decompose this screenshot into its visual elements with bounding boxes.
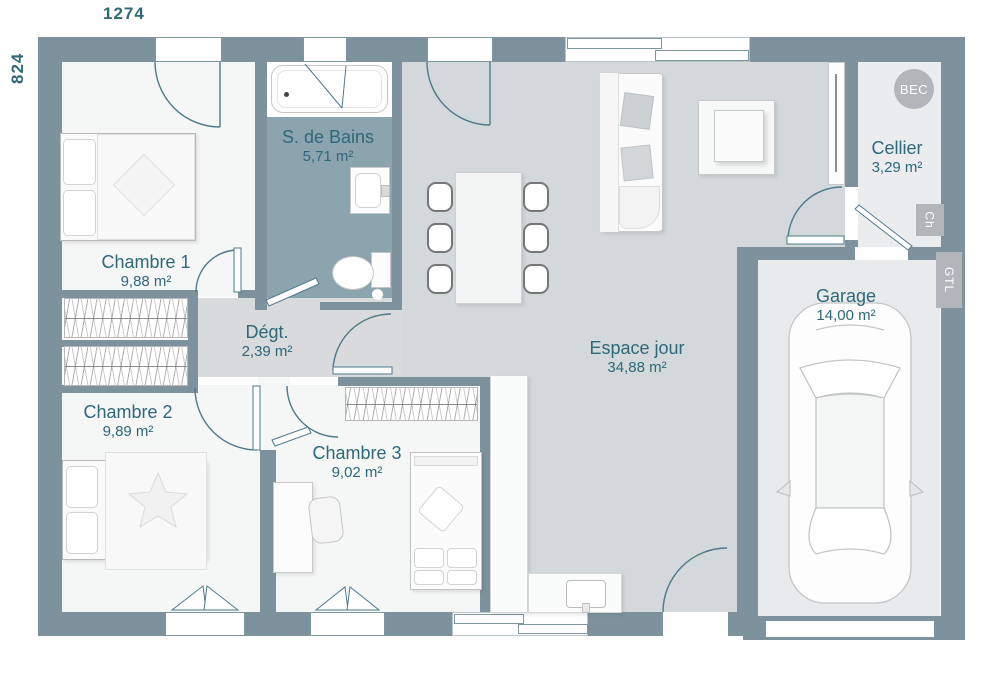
room-name: Cellier: [837, 138, 957, 159]
back-door-opening: [663, 612, 728, 636]
badge-ch: Ch: [916, 204, 944, 236]
sink-faucet: [582, 603, 590, 613]
dining-chair: [427, 182, 453, 212]
room-name: S. de Bains: [258, 127, 398, 148]
badge-bec: BEC: [894, 69, 934, 109]
washbasin-tap: [381, 185, 390, 197]
room-name: Chambre 2: [48, 402, 208, 423]
bathtub-drain: [284, 92, 289, 97]
pillow: [63, 190, 96, 236]
badge-gtl-label: GTL: [942, 267, 956, 293]
sofa-pillow: [620, 145, 653, 182]
sliding-panel: [518, 624, 588, 634]
room-label-sdb: S. de Bains 5,71 m²: [258, 127, 398, 165]
room-area: 3,29 m²: [837, 159, 957, 176]
room-area: 5,71 m²: [258, 148, 398, 165]
wall: [255, 62, 267, 310]
sliding-panel: [567, 38, 662, 49]
room-area: 9,89 m²: [48, 423, 208, 440]
entry-door-opening: [427, 37, 493, 62]
sliding-panel: [454, 614, 524, 624]
sofa-backrest: [600, 73, 619, 232]
cushion: [447, 548, 477, 568]
french-door-chambre1: [155, 37, 222, 62]
dining-chair: [523, 223, 549, 253]
washbasin-bowl: [355, 173, 381, 208]
bathtub-inner: [277, 70, 382, 108]
wall: [737, 247, 855, 260]
desk: [273, 482, 313, 573]
closet-chambre2: [64, 346, 188, 386]
casement-window-chambre3: [310, 612, 385, 636]
bathroom-window: [303, 37, 347, 62]
dining-chair: [523, 264, 549, 294]
dimension-height: 824: [8, 24, 28, 84]
wall: [238, 290, 255, 298]
room-label-degt: Dégt. 2,39 m²: [197, 322, 337, 360]
wall: [392, 62, 402, 310]
dining-chair: [427, 223, 453, 253]
pillow: [63, 139, 96, 185]
room-name: Chambre 1: [66, 252, 226, 273]
room-area: 34,88 m²: [557, 359, 717, 376]
dimension-width: 1274: [103, 4, 145, 24]
cushion: [414, 570, 444, 585]
coffee-table-top: [714, 110, 764, 162]
room-label-cellier: Cellier 3,29 m²: [837, 138, 957, 176]
room-name: Garage: [766, 286, 926, 307]
garage-door: [765, 620, 935, 638]
toilet-tank: [371, 252, 391, 288]
wall: [62, 385, 196, 393]
badge-ch-label: Ch: [923, 211, 937, 228]
room-area: 9,88 m²: [66, 273, 226, 290]
wall: [320, 302, 402, 310]
duvet: [105, 452, 207, 570]
floor-plan: 1274 824: [0, 0, 1000, 673]
sofa-pillow: [620, 92, 654, 130]
pillow: [66, 512, 98, 554]
door-stop: [372, 289, 383, 300]
room-label-chambre1: Chambre 1 9,88 m²: [66, 252, 226, 290]
wall: [62, 290, 196, 298]
wall: [941, 37, 965, 640]
badge-gtl: GTL: [936, 252, 962, 308]
wardrobe-chambre3: [345, 387, 478, 421]
wall: [38, 612, 743, 636]
room-label-chambre3: Chambre 3 9,02 m²: [277, 443, 437, 481]
cushion: [447, 570, 477, 585]
closet-chambre1: [64, 298, 188, 338]
wall: [338, 377, 483, 386]
room-area: 14,00 m²: [766, 307, 926, 324]
wall: [845, 240, 858, 247]
room-name: Chambre 3: [277, 443, 437, 464]
room-label-garage: Garage 14,00 m²: [766, 286, 926, 324]
desk-chair: [307, 495, 344, 545]
wall: [38, 37, 62, 636]
casement-window-chambre2: [165, 612, 245, 636]
dining-table: [455, 172, 522, 304]
toilet-bowl: [332, 256, 374, 290]
room-name: Espace jour: [557, 338, 717, 359]
room-area: 2,39 m²: [197, 343, 337, 360]
dining-chair: [523, 182, 549, 212]
room-name: Dégt.: [197, 322, 337, 343]
cushion: [414, 548, 444, 568]
wall: [737, 247, 758, 616]
room-label-espace-jour: Espace jour 34,88 m²: [557, 338, 717, 376]
pillow: [66, 466, 98, 508]
wall: [255, 302, 267, 310]
kitchen-counter: [490, 375, 528, 613]
room-label-chambre2: Chambre 2 9,89 m²: [48, 402, 208, 440]
sliding-panel: [655, 50, 749, 61]
badge-bec-label: BEC: [900, 82, 928, 97]
room-area: 9,02 m²: [277, 464, 437, 481]
dining-chair: [427, 264, 453, 294]
